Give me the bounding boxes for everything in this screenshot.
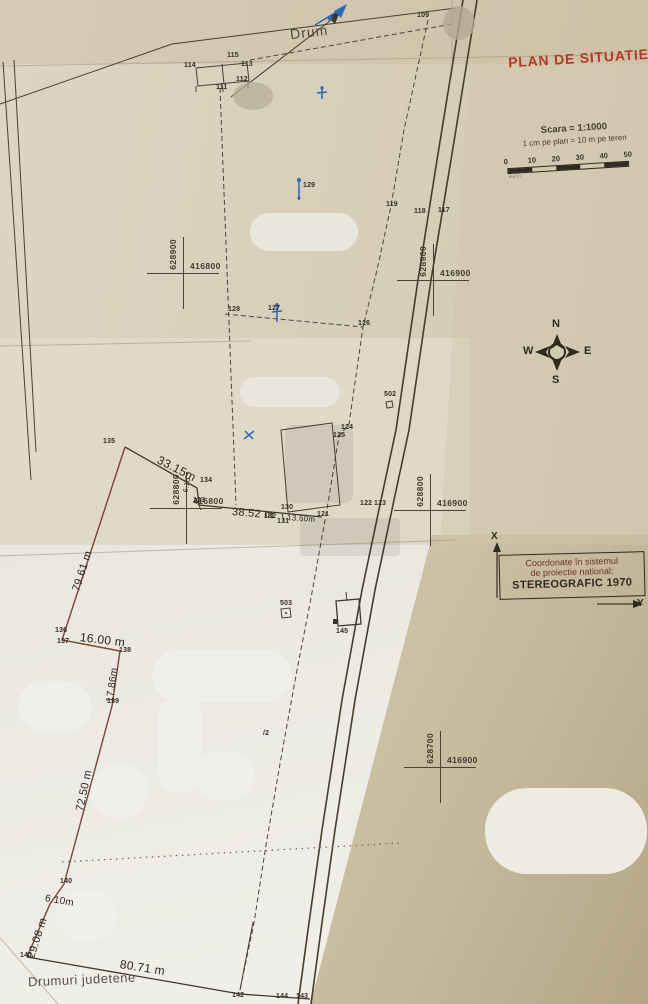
point-label: 135 [103,438,115,445]
point-label: 126 [358,320,370,327]
grid-northing-label: 628800 [171,474,181,505]
point-label: 143 [296,993,308,1000]
grid-cross-arm [430,474,431,546]
point-label: 117 [438,207,450,214]
redaction-blob [240,377,340,407]
plan-canvas: PLAN DE SITUATIE Scara = 1:1000 1 cm pe … [0,0,648,1004]
grid-cross-arm [433,244,434,316]
smudge-mark [233,82,273,110]
compass-west-label: W [523,345,533,357]
point-label: 111 [216,84,228,91]
point-label: 502 [384,391,396,398]
grid-easting-label: 416800 [190,261,221,271]
point-label: 119 [386,201,398,208]
grid-easting-label: 416900 [447,755,478,765]
redaction-blob [152,650,292,702]
compass-north-label: N [552,318,560,330]
point-label: 113 [241,61,253,68]
measurement-label: 13.60m [287,513,316,524]
grid-easting-label: 416900 [437,498,468,508]
smudge-mark [443,6,475,40]
coordinate-system-box: Coordonate în sistemul de proiectie nati… [498,551,645,600]
redaction-blob [193,752,255,800]
scale-tick-label: 30 [575,152,584,161]
redaction-blob [485,788,647,874]
compass-east-label: E [584,345,591,357]
grid-northing-label: 628900 [418,246,428,277]
point-label: 145 [336,628,348,635]
x-axis-label: X [491,531,498,542]
compass-south-label: S [552,374,559,386]
coord-box-projection: STEREOGRAFIC 1970 [500,576,644,592]
redaction-blob [250,213,358,251]
point-label: 133 [193,497,205,504]
point-label: 137 [57,638,69,645]
grid-northing-label: 628800 [415,476,425,507]
point-label: /2 [263,730,269,737]
point-label: 122 [360,500,372,507]
grid-cross-arm [440,731,441,803]
point-label: 109 [417,12,429,19]
point-label: 140 [60,878,72,885]
point-label: 112 [236,76,248,83]
redaction-blob [91,763,148,818]
point-label: 129 [303,182,315,189]
y-axis-label: Y [637,598,644,609]
scale-block: Scara = 1:1000 1 cm pe plan = 10 m pe te… [504,119,647,175]
grid-easting-label: 416900 [440,268,471,278]
point-label: 144 [276,993,288,1000]
scale-tick-label: 50 [623,150,632,159]
point-label: 503 [280,600,292,607]
point-label: 123 [374,500,386,507]
point-label: 125 [333,432,345,439]
scale-tick-label: 40 [599,151,608,160]
point-label: 127 [268,305,280,312]
point-label: 124 [341,424,353,431]
point-label: 121 [317,511,329,518]
point-label: 118 [414,208,426,215]
point-label: 134 [200,477,212,484]
scale-unit-label: metri [509,173,522,179]
grid-northing-label: 628700 [425,733,435,764]
redaction-blob [18,681,92,733]
point-label: 114 [184,62,196,69]
scale-ticks: 01020304050 [505,149,645,158]
point-label: 136 [55,627,67,634]
point-label: 130 [281,504,293,511]
scale-tick-label: 10 [527,155,536,164]
point-label: 128 [228,306,240,313]
grid-cross-arm [183,237,184,309]
point-label: 142 [232,992,244,999]
point-label: 115 [227,52,239,59]
scale-tick-label: 20 [551,154,560,163]
grid-northing-label: 628900 [168,239,178,270]
scale-tick-label: 0 [504,157,509,166]
